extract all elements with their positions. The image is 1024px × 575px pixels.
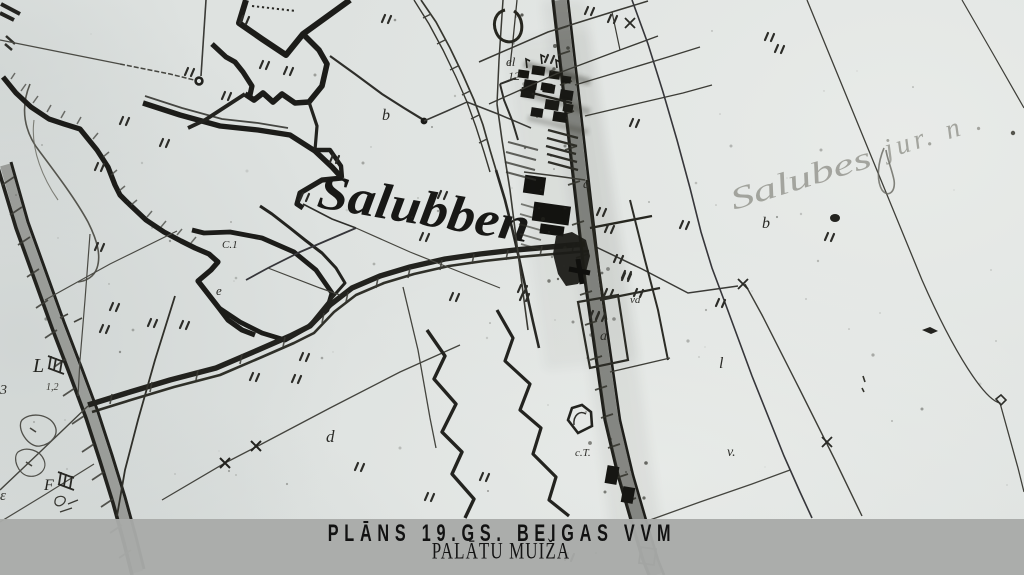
svg-text:d: d (326, 427, 335, 446)
svg-text:3: 3 (0, 383, 7, 398)
svg-text:l: l (719, 355, 724, 372)
svg-text:v.: v. (727, 445, 736, 460)
svg-text:F: F (43, 477, 54, 494)
svg-text:e: e (216, 283, 222, 298)
svg-text:va: va (630, 294, 641, 306)
svg-text:L: L (32, 355, 44, 377)
svg-text:b: b (382, 107, 390, 124)
svg-text:b: b (762, 215, 770, 232)
svg-text:1,2: 1,2 (46, 382, 59, 393)
svg-text:c.T.: c.T. (575, 447, 591, 459)
svg-text:ε: ε (0, 488, 6, 504)
svg-text:el: el (506, 54, 516, 69)
svg-text:C.1: C.1 (222, 239, 238, 251)
svg-text:PALĀTU MUIŽA: PALĀTU MUIŽA (432, 538, 570, 564)
svg-text:12: 12 (508, 69, 520, 83)
